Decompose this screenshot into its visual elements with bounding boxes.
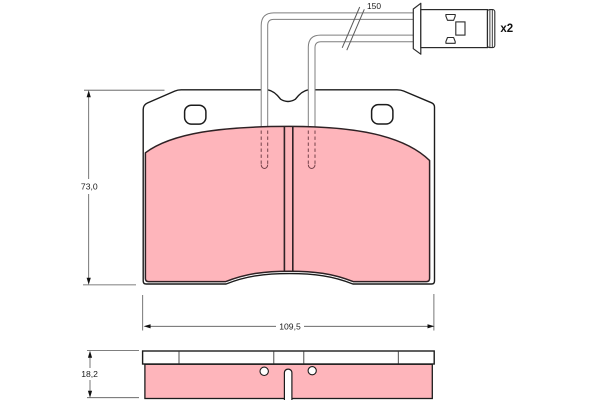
svg-text:150: 150: [367, 1, 381, 11]
svg-text:109,5: 109,5: [279, 321, 301, 331]
svg-text:73,0: 73,0: [81, 182, 98, 192]
svg-text:x2: x2: [500, 23, 513, 35]
svg-text:18,2: 18,2: [81, 369, 98, 379]
